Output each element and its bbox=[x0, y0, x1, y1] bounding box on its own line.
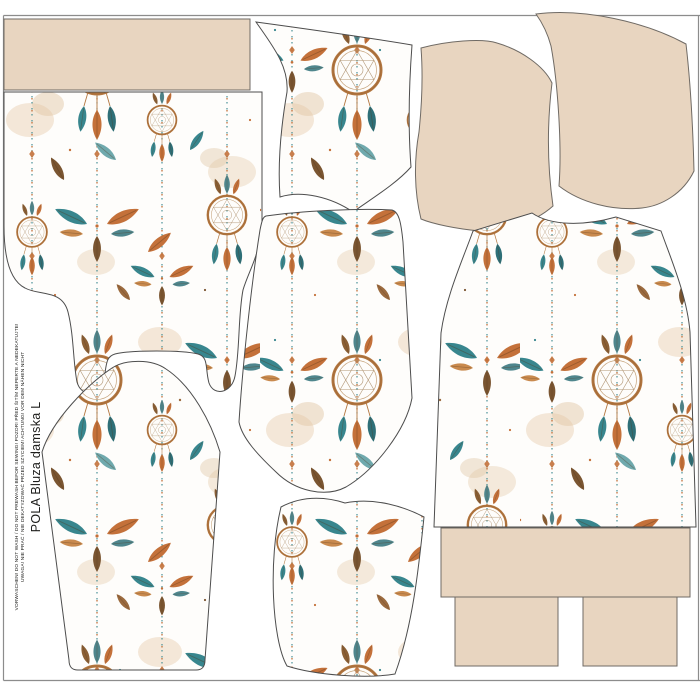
sleeve-piece-middle bbox=[239, 209, 412, 492]
hood-lining-piece-right bbox=[536, 13, 694, 209]
fabric-pattern-panel: VORWASCHEN! DO NOT WASH / DO NOT PREWASH… bbox=[0, 0, 700, 700]
hood-piece-bottom bbox=[273, 498, 424, 676]
care-instructions-line-1: UWAGA! NIE PRAĆ / NIE DEKATYZOWAĆ PRZED … bbox=[21, 317, 27, 617]
back-bodice-piece bbox=[434, 213, 696, 527]
pattern-pieces-graphic bbox=[0, 0, 700, 700]
hem-band-piece-bottom bbox=[441, 528, 690, 597]
selvedge-text: VORWASCHEN! DO NOT WASH / DO NOT PREWASH… bbox=[15, 317, 45, 617]
hood-lining-piece-left bbox=[415, 41, 553, 232]
cuff-piece-right bbox=[583, 597, 677, 666]
hood-piece-top bbox=[256, 22, 412, 212]
sleeve-piece-left bbox=[42, 361, 220, 670]
panel-title: POLA Bluza damska L bbox=[29, 317, 45, 617]
cuff-piece-left bbox=[455, 597, 558, 666]
hem-band-piece-top bbox=[4, 19, 250, 90]
